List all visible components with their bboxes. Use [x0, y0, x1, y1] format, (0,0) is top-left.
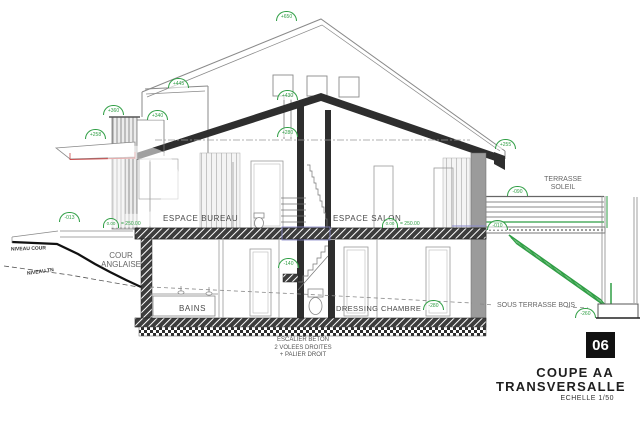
label-espace-bureau: ESPACE BUREAU — [163, 214, 238, 223]
label-terrasse-soleil: TERRASSE SOLEIL — [534, 176, 592, 192]
level-marker-floor-right: 0.00= 250.00 — [382, 218, 420, 228]
section-drawing-sheet: D ESPACE BUREAU ESPACE SALON BAINS DRESS… — [0, 0, 640, 426]
stair-footing — [596, 304, 640, 318]
basement-structure — [135, 239, 486, 336]
level-marker-stair-landing: -140 — [278, 258, 299, 268]
level-marker-terrace-slab: -010 — [487, 220, 508, 230]
drawing-title-line1: COUPE AA — [496, 365, 614, 380]
garden-stair — [509, 196, 611, 308]
level-marker-parapet-step: +340 — [147, 110, 168, 120]
wc-upper — [254, 213, 264, 229]
floor-slab — [135, 226, 486, 240]
wc-lower — [308, 289, 323, 315]
level-marker-right-eave: +255 — [495, 139, 516, 149]
label-dressing: DRESSING — [336, 304, 378, 313]
label-niveau-cour: NIVEAU COUR — [11, 245, 46, 252]
level-marker-garden-stair-foot: -260 — [575, 308, 596, 318]
level-marker-parapet: +360 — [103, 105, 124, 115]
entry-canopy — [56, 142, 135, 160]
label-cour-anglaise: COUR ANGLAISE — [95, 251, 147, 269]
stair-note: ESCALIER BETON 2 VOLEES DROITES + PALIER… — [266, 337, 340, 360]
level-marker-ridge: +650 — [276, 11, 297, 21]
level-marker-terrace-deck: -090 — [507, 186, 528, 196]
drawing-title-line2: TRANSVERSALLE — [496, 379, 614, 394]
drawing-scale: ECHELLE 1/50 — [496, 395, 614, 402]
level-marker-left-wing: +445 — [168, 78, 189, 88]
level-marker-canopy: +258 — [85, 129, 106, 139]
level-marker-basement-floor: -280 — [423, 300, 444, 310]
section-linework — [0, 0, 640, 426]
sheet-number: 06 — [586, 332, 615, 358]
label-chambre: CHAMBRE — [381, 304, 421, 313]
terrace-structure — [486, 196, 637, 304]
label-sous-terrasse: SOUS TERRASSE BOIS — [497, 302, 575, 310]
stair-shaft-walls — [297, 101, 335, 320]
label-bains: BAINS — [179, 304, 206, 313]
level-marker-roof-peak: +430 — [277, 90, 298, 100]
level-marker-floor-left: 0.00= 250.00 — [103, 218, 141, 228]
level-marker-cour: -013 — [59, 212, 80, 222]
left-wing-wall — [109, 117, 164, 229]
level-marker-ceiling: +280 — [277, 127, 298, 137]
